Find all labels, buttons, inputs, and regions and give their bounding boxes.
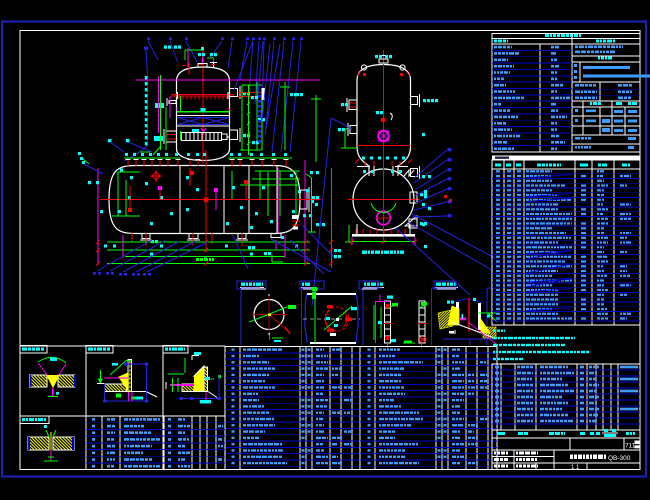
svg-text:1 1: 1 1: [571, 465, 580, 471]
svg-text:711: 711: [625, 443, 636, 450]
svg-text:QB-300: QB-300: [608, 455, 631, 462]
